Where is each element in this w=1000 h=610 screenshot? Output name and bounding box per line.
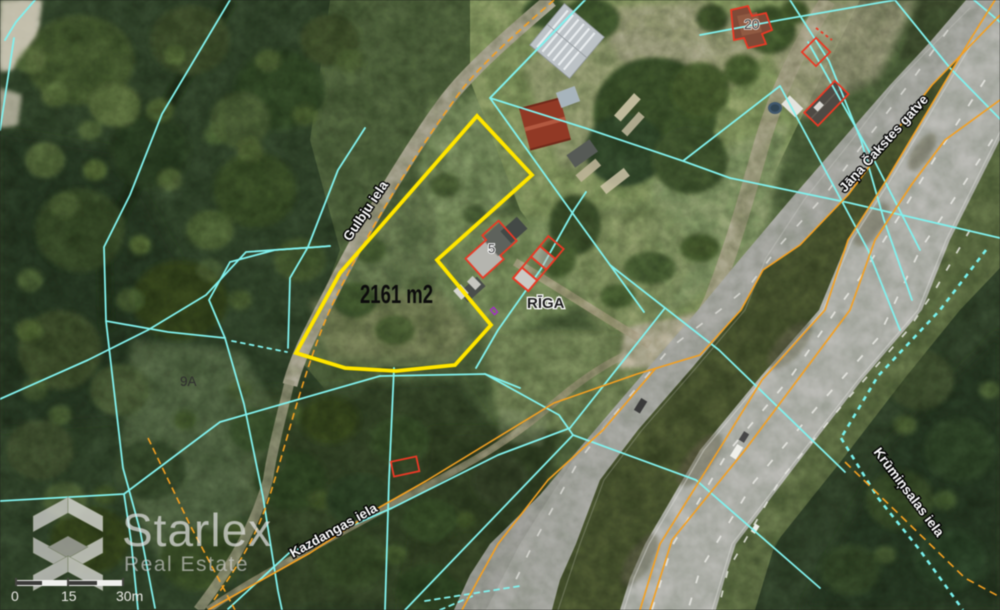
svg-text:9A: 9A	[180, 374, 197, 389]
svg-text:0: 0	[11, 588, 19, 604]
svg-text:30m: 30m	[116, 588, 143, 604]
svg-text:Real Estate: Real Estate	[124, 553, 249, 576]
svg-text:2161 m2: 2161 m2	[360, 279, 433, 309]
svg-text:Starlex: Starlex	[122, 504, 272, 556]
svg-text:15: 15	[61, 588, 77, 604]
svg-text:20: 20	[744, 16, 760, 32]
svg-text:5: 5	[488, 241, 495, 256]
svg-text:RĪGA: RĪGA	[527, 295, 565, 312]
